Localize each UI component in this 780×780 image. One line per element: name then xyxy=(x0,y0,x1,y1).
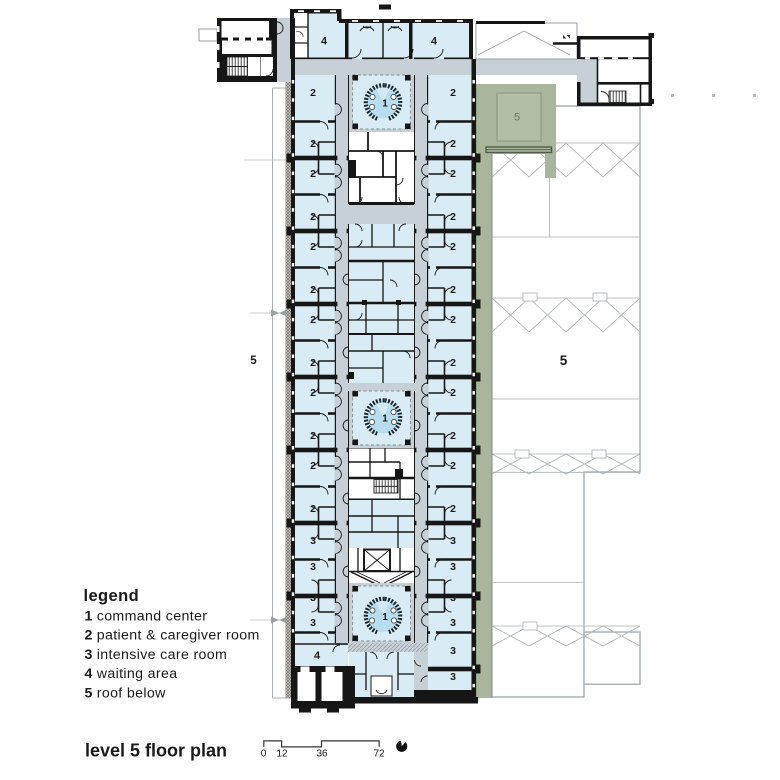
svg-text:1command center: 1command center xyxy=(85,608,208,624)
svg-text:0: 0 xyxy=(261,749,267,760)
svg-text:4waiting area: 4waiting area xyxy=(85,666,178,682)
svg-text:2: 2 xyxy=(310,138,316,150)
svg-text:1: 1 xyxy=(382,612,388,623)
svg-text:2: 2 xyxy=(310,460,316,472)
svg-text:2: 2 xyxy=(450,168,456,180)
svg-text:5roof below: 5roof below xyxy=(85,686,167,702)
svg-text:72: 72 xyxy=(373,749,385,760)
svg-text:2: 2 xyxy=(450,211,456,223)
svg-text:3intensive care room: 3intensive care room xyxy=(85,647,228,663)
svg-text:2: 2 xyxy=(310,503,316,515)
svg-text:3: 3 xyxy=(310,592,316,604)
svg-text:3: 3 xyxy=(450,535,456,547)
svg-text:2: 2 xyxy=(450,314,456,326)
svg-text:2: 2 xyxy=(450,503,456,515)
svg-text:2: 2 xyxy=(450,87,456,99)
svg-text:3: 3 xyxy=(310,561,316,573)
svg-text:2: 2 xyxy=(450,460,456,472)
svg-text:2: 2 xyxy=(450,357,456,369)
svg-text:2: 2 xyxy=(450,138,456,150)
svg-text:3: 3 xyxy=(310,617,316,629)
svg-text:2: 2 xyxy=(310,430,316,442)
svg-text:4: 4 xyxy=(431,36,438,48)
svg-text:1: 1 xyxy=(382,414,388,425)
svg-text:2: 2 xyxy=(310,241,316,253)
svg-text:5: 5 xyxy=(560,353,568,368)
svg-text:3: 3 xyxy=(310,535,316,547)
svg-text:2: 2 xyxy=(310,87,316,99)
svg-text:3: 3 xyxy=(450,592,456,604)
svg-text:2: 2 xyxy=(450,241,456,253)
svg-text:2: 2 xyxy=(450,387,456,399)
svg-text:2: 2 xyxy=(310,357,316,369)
svg-text:5: 5 xyxy=(250,355,257,367)
svg-text:2: 2 xyxy=(310,314,316,326)
svg-text:3: 3 xyxy=(450,561,456,573)
svg-text:3: 3 xyxy=(450,671,456,683)
svg-text:legend: legend xyxy=(84,587,140,605)
svg-text:2: 2 xyxy=(310,168,316,180)
svg-text:2: 2 xyxy=(450,284,456,296)
svg-text:5: 5 xyxy=(514,112,520,124)
svg-text:2: 2 xyxy=(310,387,316,399)
svg-text:level 5 floor plan: level 5 floor plan xyxy=(85,741,227,761)
svg-text:4: 4 xyxy=(321,36,328,48)
svg-text:2: 2 xyxy=(310,211,316,223)
svg-text:2: 2 xyxy=(450,430,456,442)
svg-text:36: 36 xyxy=(316,749,328,760)
svg-text:12: 12 xyxy=(276,749,288,760)
svg-text:2: 2 xyxy=(310,284,316,296)
svg-text:4: 4 xyxy=(314,650,321,662)
svg-text:1: 1 xyxy=(382,99,388,110)
svg-text:2patient & caregiver room: 2patient & caregiver room xyxy=(85,628,260,644)
svg-text:3: 3 xyxy=(450,617,456,629)
svg-text:3: 3 xyxy=(450,645,456,657)
